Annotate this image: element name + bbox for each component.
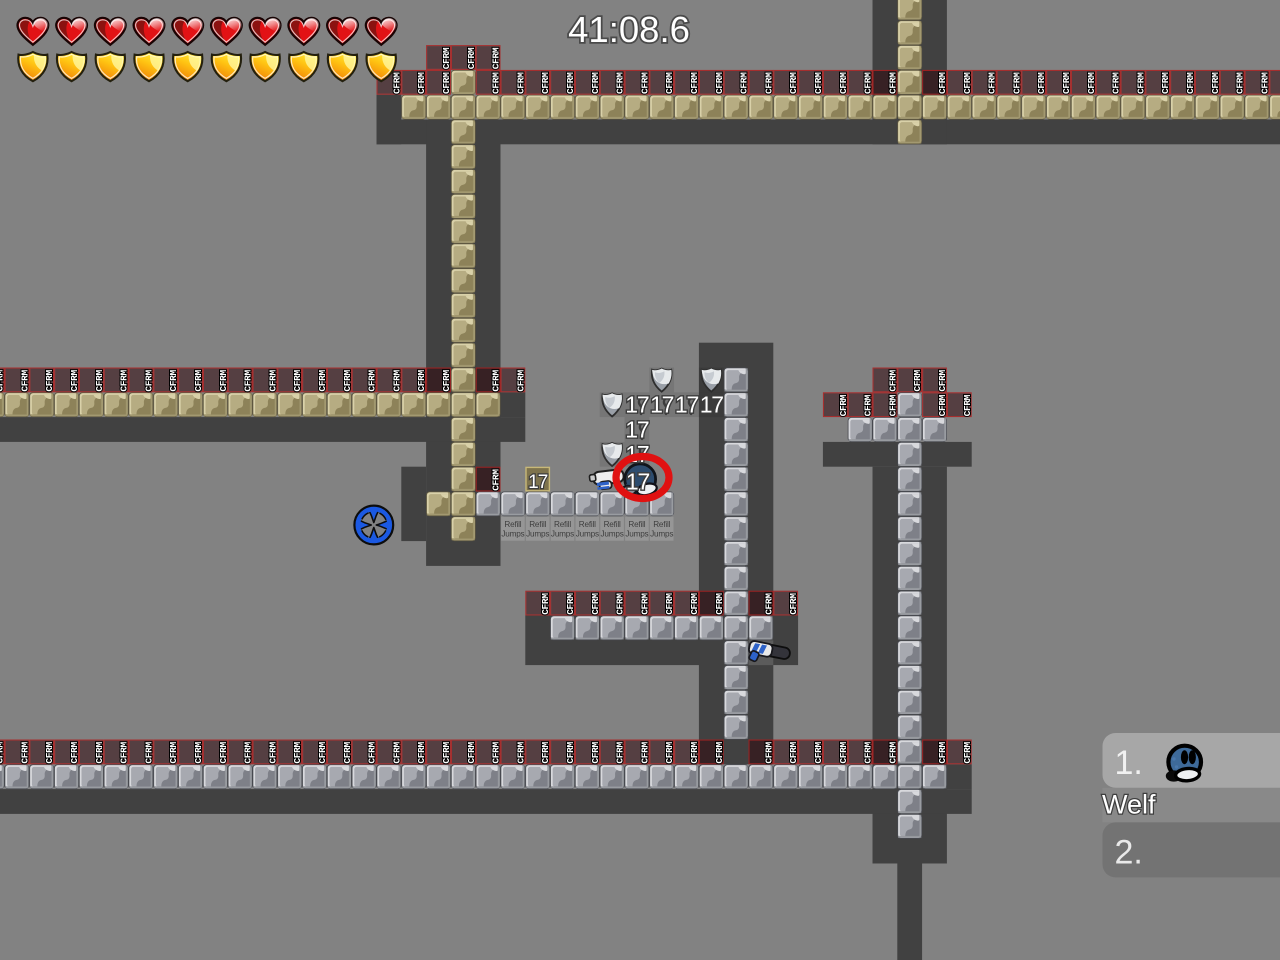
svg-text:2.: 2. (1115, 833, 1143, 871)
svg-text:Welf: Welf (1102, 789, 1156, 819)
svg-text:17: 17 (528, 472, 548, 493)
svg-text:17: 17 (626, 469, 650, 495)
svg-text:17: 17 (650, 392, 674, 418)
svg-text:17: 17 (625, 416, 649, 442)
svg-text:1.: 1. (1115, 744, 1143, 782)
svg-text:17: 17 (700, 392, 724, 418)
svg-text:41:08.6: 41:08.6 (568, 9, 690, 50)
svg-text:17: 17 (625, 392, 649, 418)
svg-text:17: 17 (675, 392, 699, 418)
